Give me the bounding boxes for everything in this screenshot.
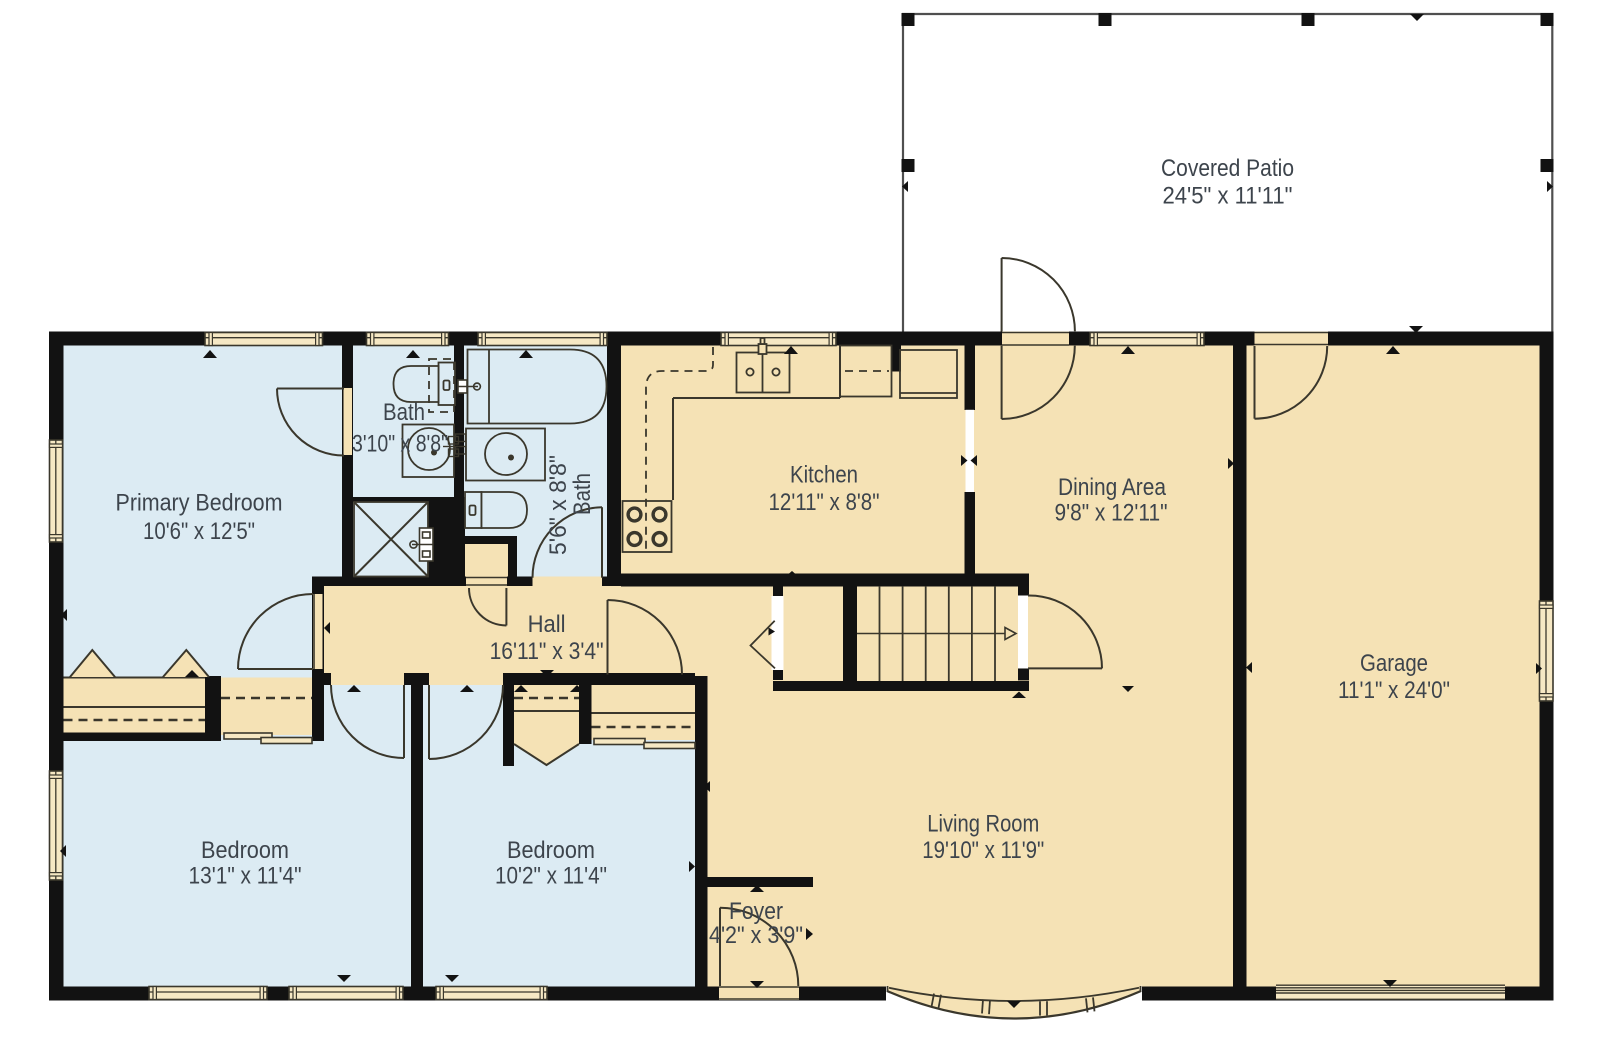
svg-text:4'2" x 3'9": 4'2" x 3'9" xyxy=(709,922,803,949)
svg-text:Foyer: Foyer xyxy=(729,898,783,925)
svg-text:Covered Patio: Covered Patio xyxy=(1161,155,1294,182)
svg-text:Bath: Bath xyxy=(383,399,425,426)
svg-text:11'1" x 24'0": 11'1" x 24'0" xyxy=(1338,677,1450,704)
svg-text:Dining Area: Dining Area xyxy=(1058,474,1166,501)
svg-text:Bedroom: Bedroom xyxy=(201,837,289,864)
svg-text:3'10" x 8'8": 3'10" x 8'8" xyxy=(352,431,448,458)
svg-text:Garage: Garage xyxy=(1360,650,1428,677)
svg-text:Bedroom: Bedroom xyxy=(507,837,595,864)
svg-text:9'8" x 12'11": 9'8" x 12'11" xyxy=(1055,499,1168,526)
svg-text:12'11" x 8'8": 12'11" x 8'8" xyxy=(769,489,880,516)
svg-text:24'5" x 11'11": 24'5" x 11'11" xyxy=(1163,183,1293,210)
svg-text:16'11" x 3'4": 16'11" x 3'4" xyxy=(490,638,604,665)
svg-text:Hall: Hall xyxy=(528,611,566,638)
svg-text:10'6" x 12'5": 10'6" x 12'5" xyxy=(143,518,255,545)
svg-text:Primary Bedroom: Primary Bedroom xyxy=(116,490,283,517)
svg-text:10'2" x 11'4": 10'2" x 11'4" xyxy=(495,863,607,890)
svg-text:Bath: Bath xyxy=(569,473,596,515)
svg-text:5'6" x 8'8": 5'6" x 8'8" xyxy=(545,455,572,555)
svg-text:Kitchen: Kitchen xyxy=(790,462,858,489)
svg-text:19'10" x 11'9": 19'10" x 11'9" xyxy=(922,837,1044,864)
svg-text:13'1" x 11'4": 13'1" x 11'4" xyxy=(189,863,302,890)
svg-text:Living Room: Living Room xyxy=(927,810,1039,837)
